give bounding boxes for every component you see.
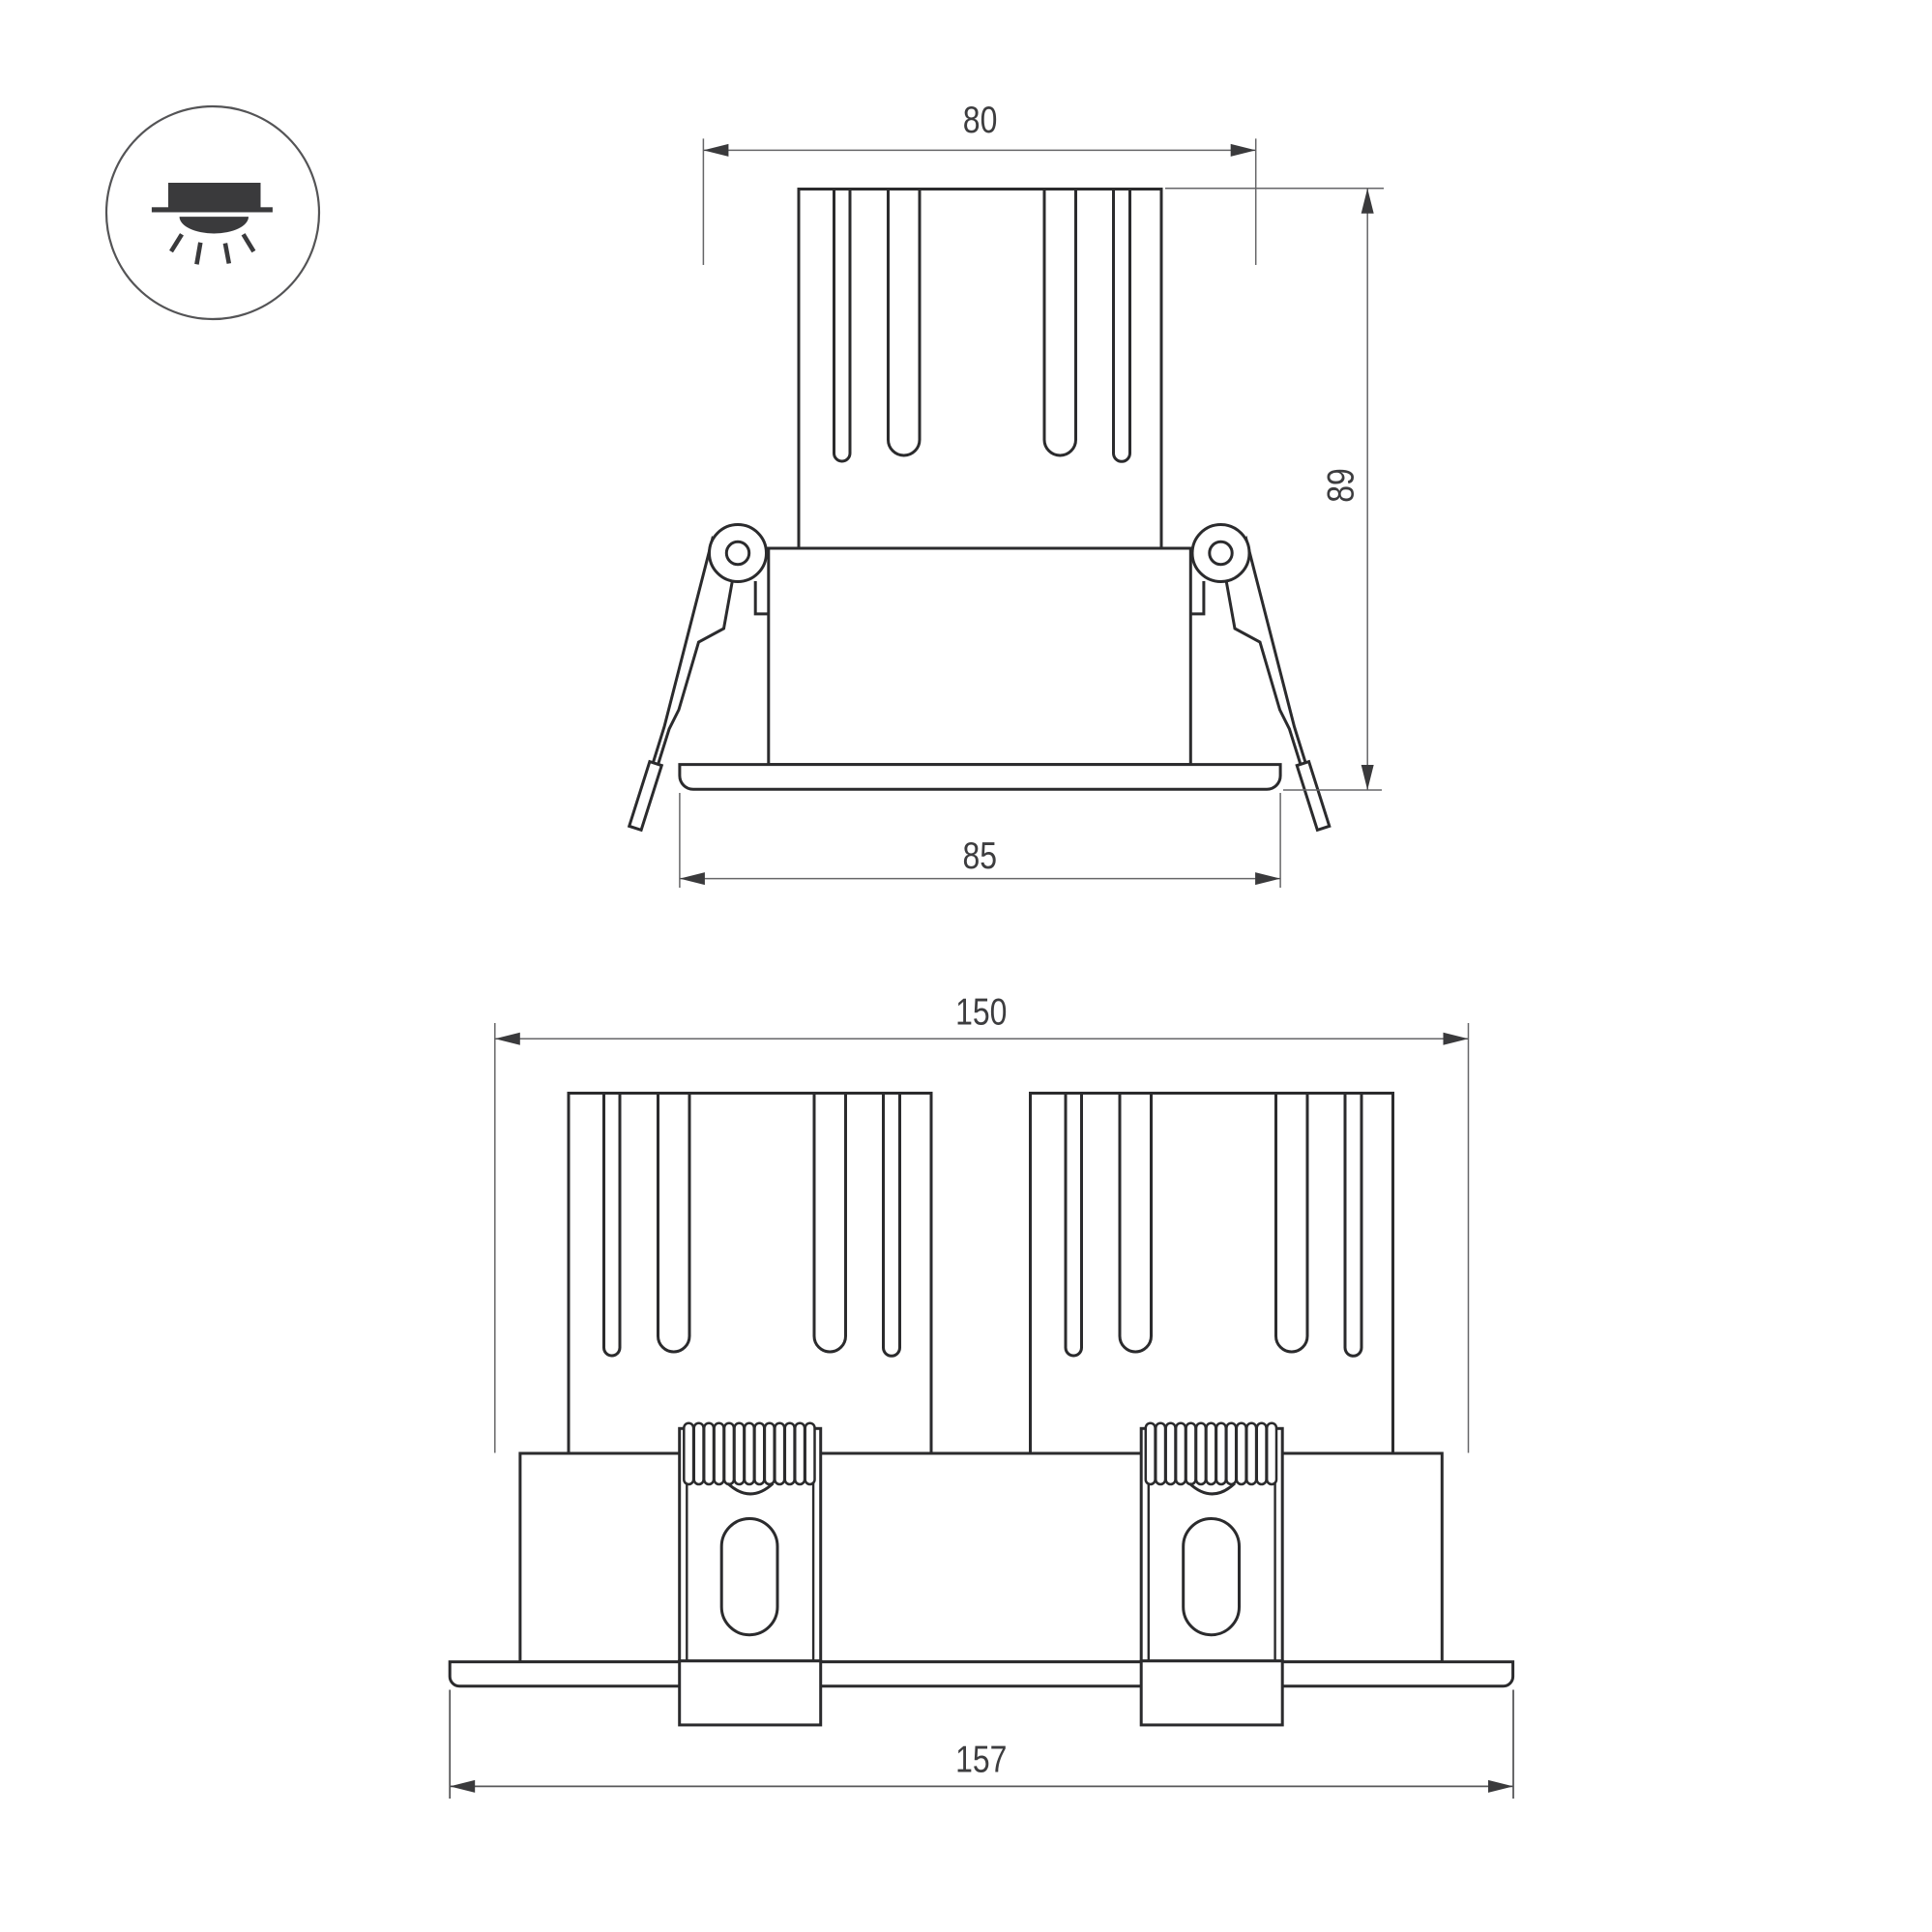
svg-text:157: 157 <box>955 1739 1007 1781</box>
svg-text:80: 80 <box>963 99 998 141</box>
svg-text:85: 85 <box>963 834 998 877</box>
svg-text:150: 150 <box>955 991 1007 1034</box>
svg-text:89: 89 <box>1319 468 1361 503</box>
